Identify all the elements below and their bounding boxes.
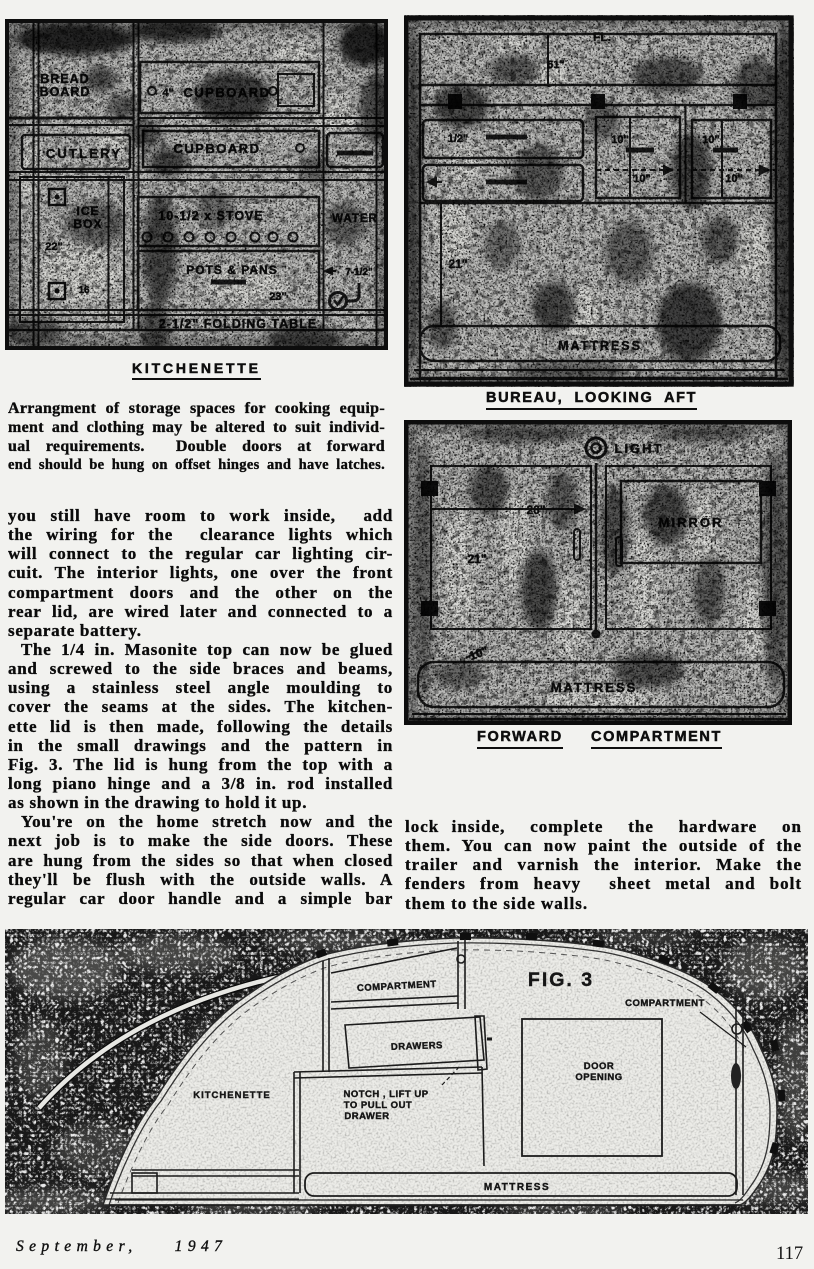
svg-text:FIG. 3: FIG. 3 [528, 969, 594, 991]
svg-text:OPENING: OPENING [575, 1072, 622, 1083]
svg-text:DRAWERS: DRAWERS [391, 1040, 443, 1053]
svg-text:COMPARTMENT: COMPARTMENT [625, 998, 705, 1009]
svg-text:MATTRESS: MATTRESS [484, 1182, 550, 1193]
svg-text:KITCHENETTE: KITCHENETTE [193, 1090, 271, 1101]
svg-text:NOTCH , LIFT UP: NOTCH , LIFT UP [343, 1089, 428, 1100]
svg-text:DRAWER: DRAWER [344, 1111, 389, 1122]
svg-text:TO PULL OUT: TO PULL OUT [344, 1100, 412, 1111]
svg-text:DOOR: DOOR [584, 1061, 615, 1072]
